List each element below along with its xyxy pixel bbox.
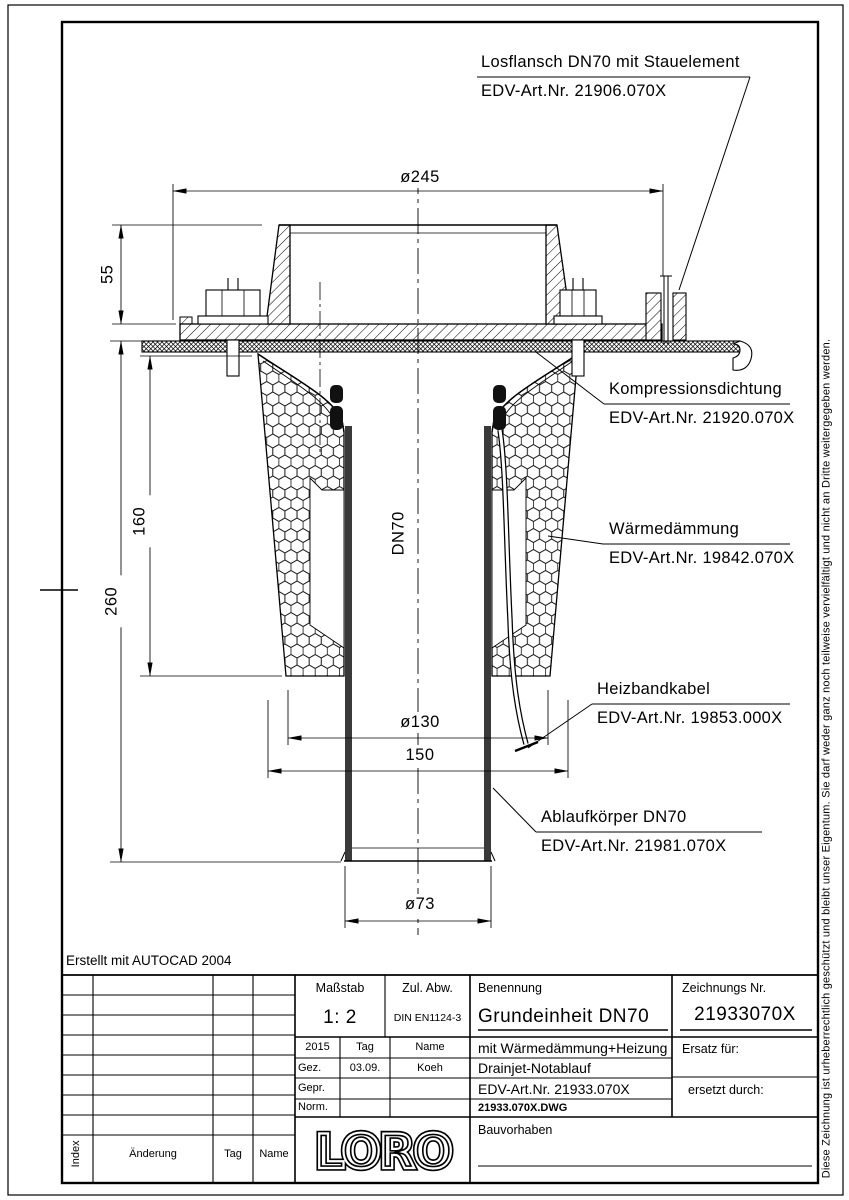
desc-line1: mit Wärmedämmung+Heizung: [478, 1040, 667, 1058]
desc-line2: Drainjet-Notablauf: [478, 1060, 591, 1078]
annotation-heizbandkabel-art: EDV-Art.Nr. 19853.000X: [597, 708, 782, 729]
annotation-heizbandkabel-title: Heizbandkabel: [597, 679, 710, 700]
edv-art-value: EDV-Art.Nr. 21933.070X: [478, 1081, 630, 1099]
dim-flange-diameter: ø245: [368, 167, 472, 188]
norm-label: Norm.: [298, 1101, 328, 1115]
benennung-value: Grundeinheit DN70: [478, 1005, 649, 1029]
revision-index-label: Index: [70, 1134, 84, 1174]
revision-tag-label: Tag: [213, 1148, 253, 1162]
annotation-losflansch-title: Losflansch DN70 mit Stauelement: [481, 52, 740, 73]
massstab-value: 1: 2: [295, 1006, 385, 1030]
year-value: 2015: [295, 1041, 340, 1055]
dim-total-height: 260: [102, 575, 123, 627]
massstab-label: Maßstab: [295, 981, 385, 997]
tag-header: Tag: [340, 1041, 390, 1055]
annotation-ablaufkoerper-title: Ablaufkörper DN70: [541, 807, 686, 828]
dim-body-width: 150: [368, 745, 472, 766]
ersetzt-label: ersetzt durch:: [688, 1083, 764, 1099]
gez-label: Gez.: [298, 1062, 321, 1076]
dim-insulation-height: 160: [130, 495, 151, 547]
annotation-ablaufkoerper-art: EDV-Art.Nr. 21981.070X: [541, 836, 726, 857]
copyright-note: Diese Zeichnung ist urheberrechtlich ges…: [821, 329, 836, 1189]
dim-insulation-diameter: ø130: [368, 712, 472, 733]
created-with-note: Erstellt mit AUTOCAD 2004: [66, 953, 232, 970]
annotation-kompressionsdichtung-art: EDV-Art.Nr. 21920.070X: [609, 408, 794, 429]
benennung-label: Benennung: [478, 981, 542, 997]
ersatz-label: Ersatz für:: [682, 1042, 739, 1058]
dwg-file-value: 21933.070X.DWG: [478, 1102, 567, 1116]
standpipe: [266, 225, 571, 324]
annotation-losflansch-art: EDV-Art.Nr. 21906.070X: [481, 81, 666, 102]
loro-logo: LORO LORO: [315, 1125, 451, 1180]
annotation-waermedaemmung-title: Wärmedämmung: [609, 519, 739, 540]
revision-aenderung-label: Änderung: [93, 1148, 213, 1162]
revision-name-label: Name: [253, 1148, 295, 1162]
zul-abw-label: Zul. Abw.: [385, 981, 470, 997]
drawing-sheet: LORO LORO Losflansch DN70 mit Stauelemen…: [0, 0, 849, 1200]
gez-name: Koeh: [390, 1062, 470, 1076]
zul-abw-value: DIN EN1124-3: [385, 1012, 470, 1025]
label-pipe-size: DN70: [389, 501, 410, 565]
annotation-waermedaemmung-art: EDV-Art.Nr. 19842.070X: [609, 548, 794, 569]
gepr-label: Gepr.: [298, 1082, 325, 1096]
zeichnung-value: 21933070X: [672, 1003, 818, 1027]
name-header: Name: [390, 1041, 470, 1055]
svg-text:LORO: LORO: [315, 1125, 451, 1180]
annotation-kompressionsdichtung-title: Kompressionsdichtung: [609, 379, 782, 400]
dim-standpipe-height: 55: [98, 250, 119, 298]
dim-pipe-outer-diameter: ø73: [368, 894, 472, 915]
zeichnung-label: Zeichnungs Nr.: [682, 981, 766, 997]
bauvorhaben-label: Bauvorhaben: [478, 1123, 552, 1139]
gez-tag: 03.09.: [340, 1062, 390, 1076]
